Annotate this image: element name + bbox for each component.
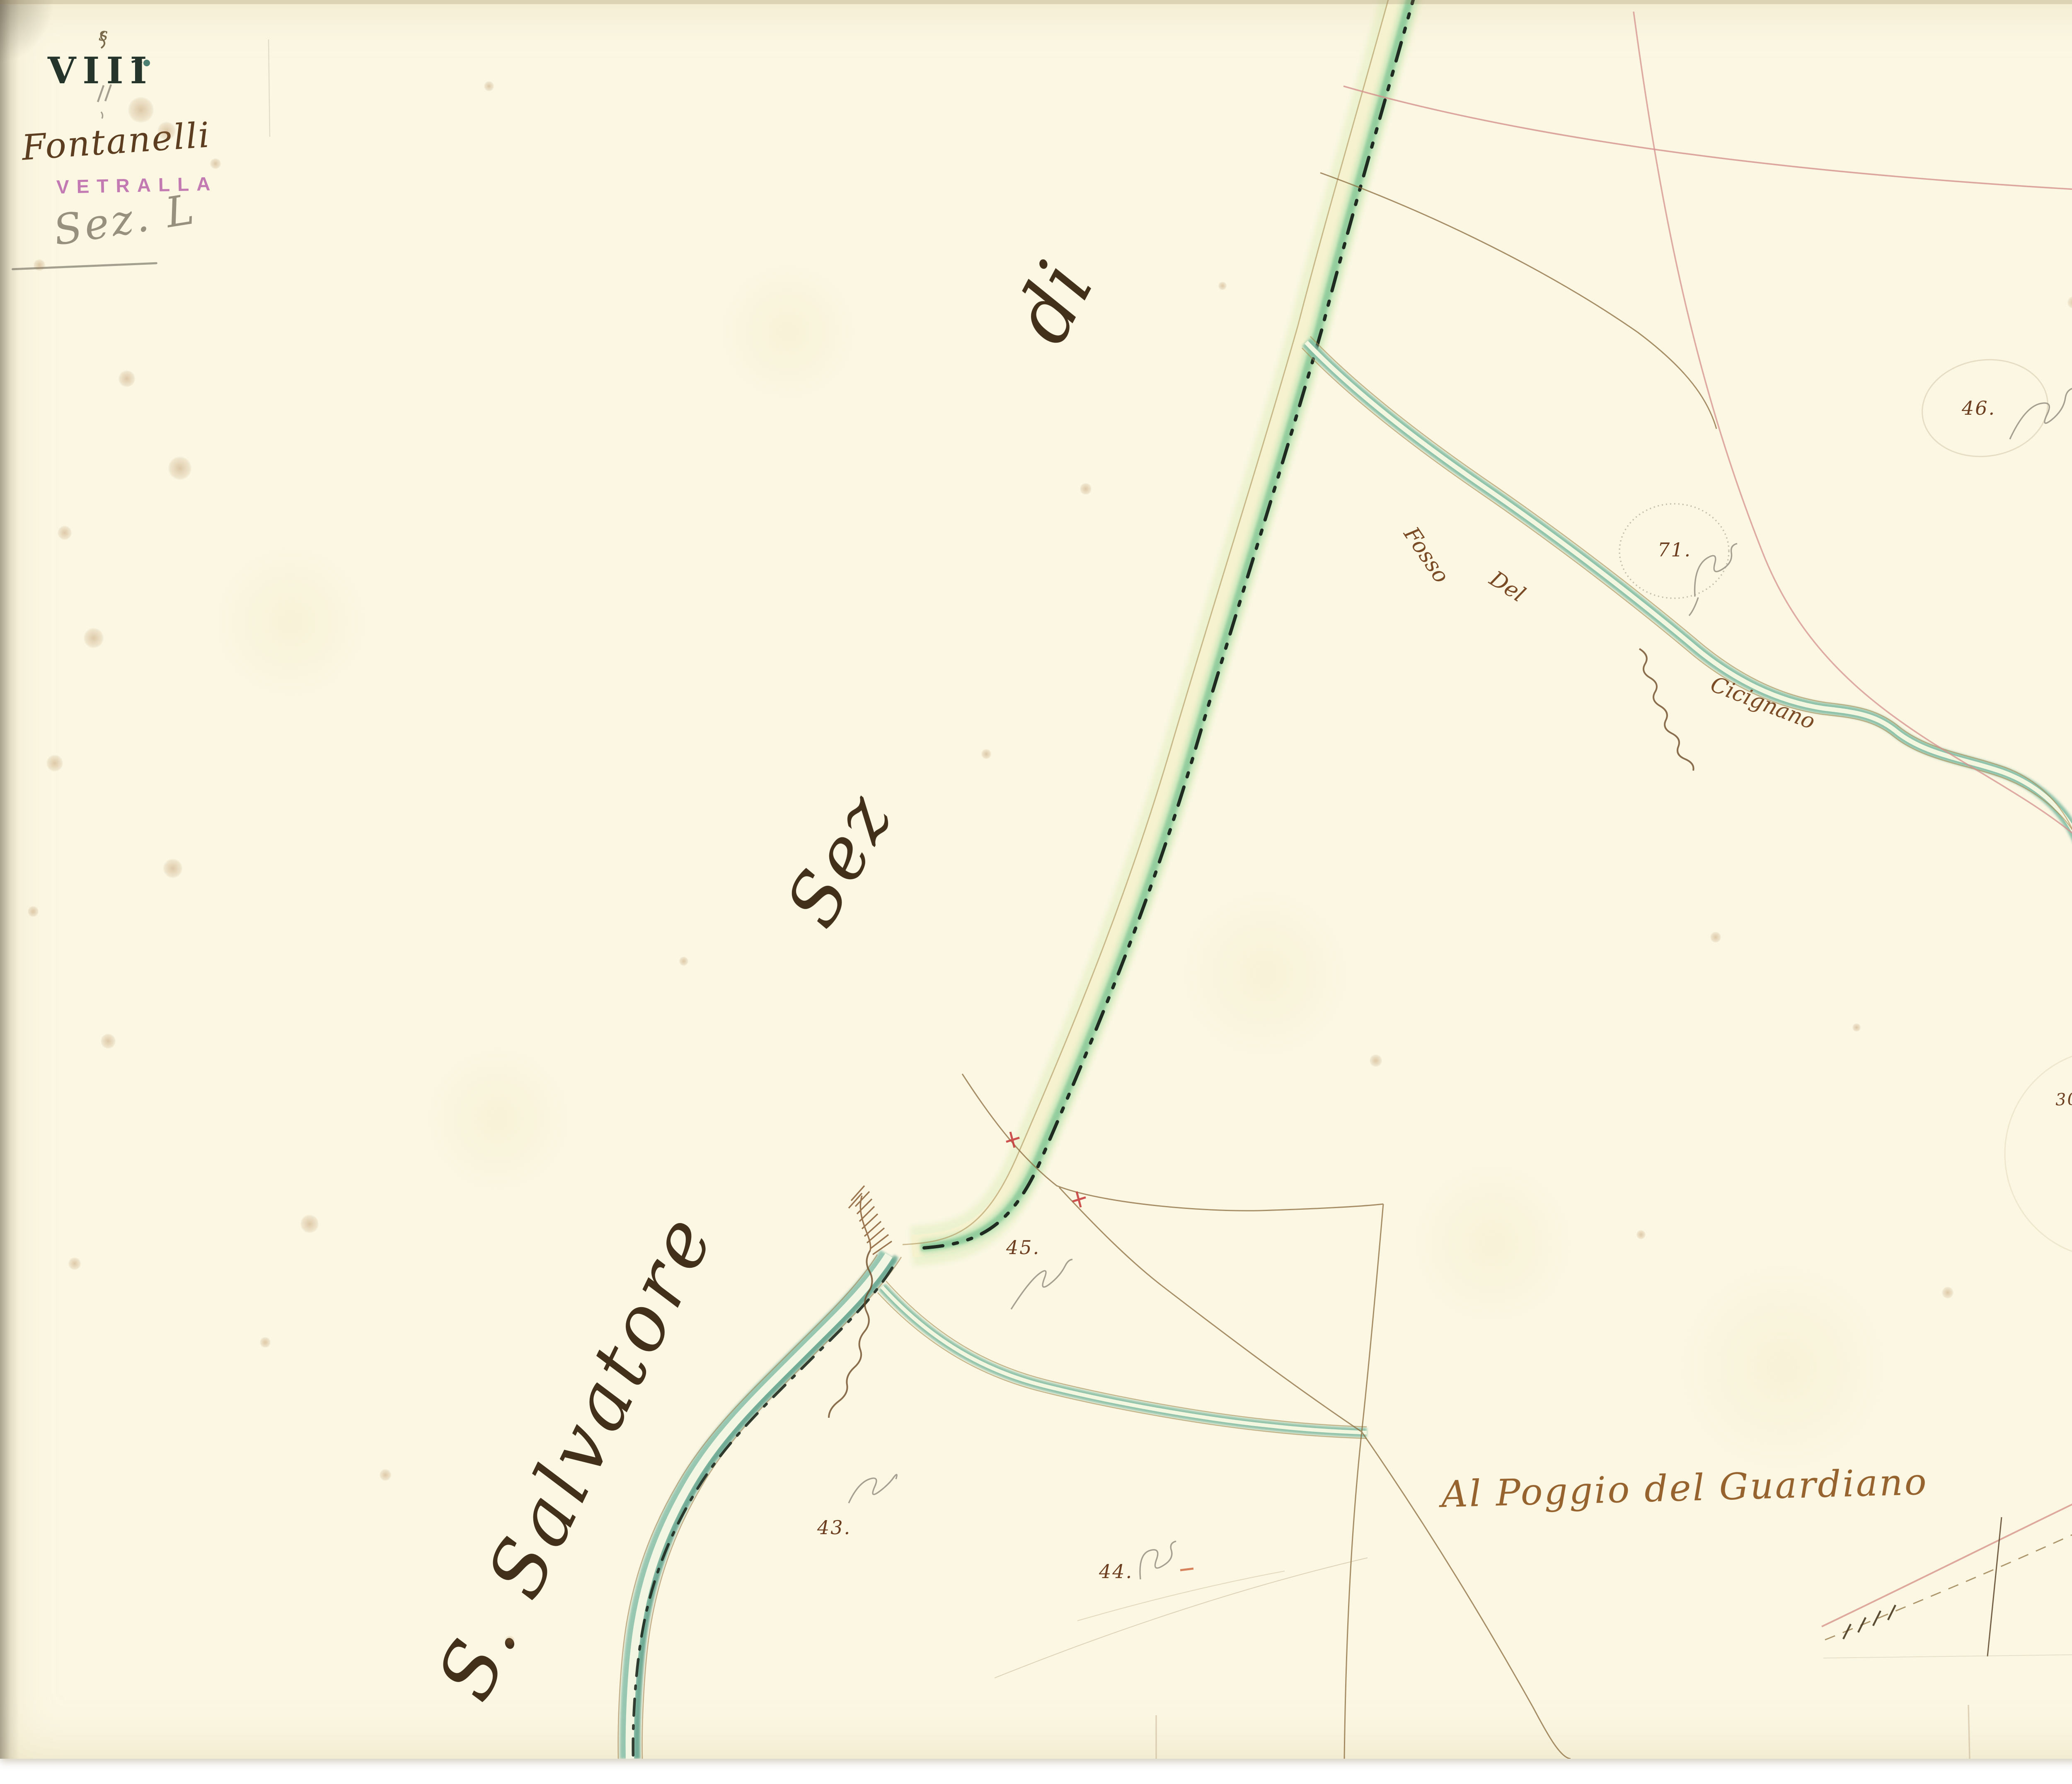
scan-edge-topleft (0, 0, 54, 62)
lower-stream-band (882, 1287, 1367, 1433)
pencil-scribble-45 (1011, 1259, 1072, 1309)
faint-cross-line-44a (995, 1558, 1368, 1678)
corner-mark: s (99, 24, 108, 45)
parcel-number-46: 46. (1962, 397, 1996, 419)
pink-line-upper (1343, 86, 2072, 198)
lower-stream-south-line (878, 1293, 1367, 1438)
main-road (903, 0, 1417, 1248)
pink-line-diagonal (1634, 12, 2072, 992)
plate-number: VIII (48, 49, 154, 92)
pencil-scribble-43 (849, 1475, 897, 1503)
pink-line-bottom-right (1822, 1417, 2072, 1627)
red-tick-3 (1180, 1569, 1193, 1570)
parcel-number-44: 44. (1099, 1560, 1133, 1583)
crease-bottom-right (1968, 1705, 1970, 1759)
stream-wavy-line (1639, 649, 1694, 771)
stream-band (1306, 342, 2072, 842)
lower-stream (878, 1281, 1367, 1438)
embankment-hatching (849, 1186, 892, 1255)
lower-stream-centre (882, 1287, 1367, 1433)
road-west-line (903, 0, 1393, 1245)
fosso-cicignano-stream (1302, 336, 2072, 847)
scan-edge-left (0, 0, 19, 1759)
faint-horizontal-line (1823, 1652, 2072, 1658)
pencil-scribble-44 (1140, 1541, 1176, 1579)
boundary-south (1344, 1432, 1362, 1759)
pencil-tick-small (101, 112, 103, 118)
parcel-number-43: 43. (817, 1516, 851, 1539)
crease-topleft (269, 39, 270, 137)
parcel-boundary-lines (962, 173, 1716, 1759)
pencil-circle-30sub (2005, 1049, 2072, 1258)
road-halo (912, 0, 1405, 1246)
parcel-number-45: 45. (1006, 1236, 1040, 1259)
pink-boundary-lines (1343, 12, 2072, 1627)
parcel-number-30sub2: 30 Subº 2. (2055, 1087, 2072, 1110)
stream-centre (1306, 342, 2072, 842)
paper-background: VIII s Fontanelli VETRALLA Sez. L di Sez… (0, 0, 2072, 1759)
dark-plumb-line (1987, 1517, 2002, 1656)
boundary-junction-drop (1362, 1204, 1383, 1432)
scan-edge-top (0, 0, 2072, 4)
parcel-number-71: 71. (1658, 539, 1692, 561)
boundary-from-road-east (1320, 173, 1716, 429)
cadastral-map-sheet: VIII s Fontanelli VETRALLA Sez. L di Sez… (0, 0, 2072, 1784)
pencil-scribble-71 (1689, 544, 1737, 616)
pencil-scribble-46 (2010, 388, 2072, 439)
